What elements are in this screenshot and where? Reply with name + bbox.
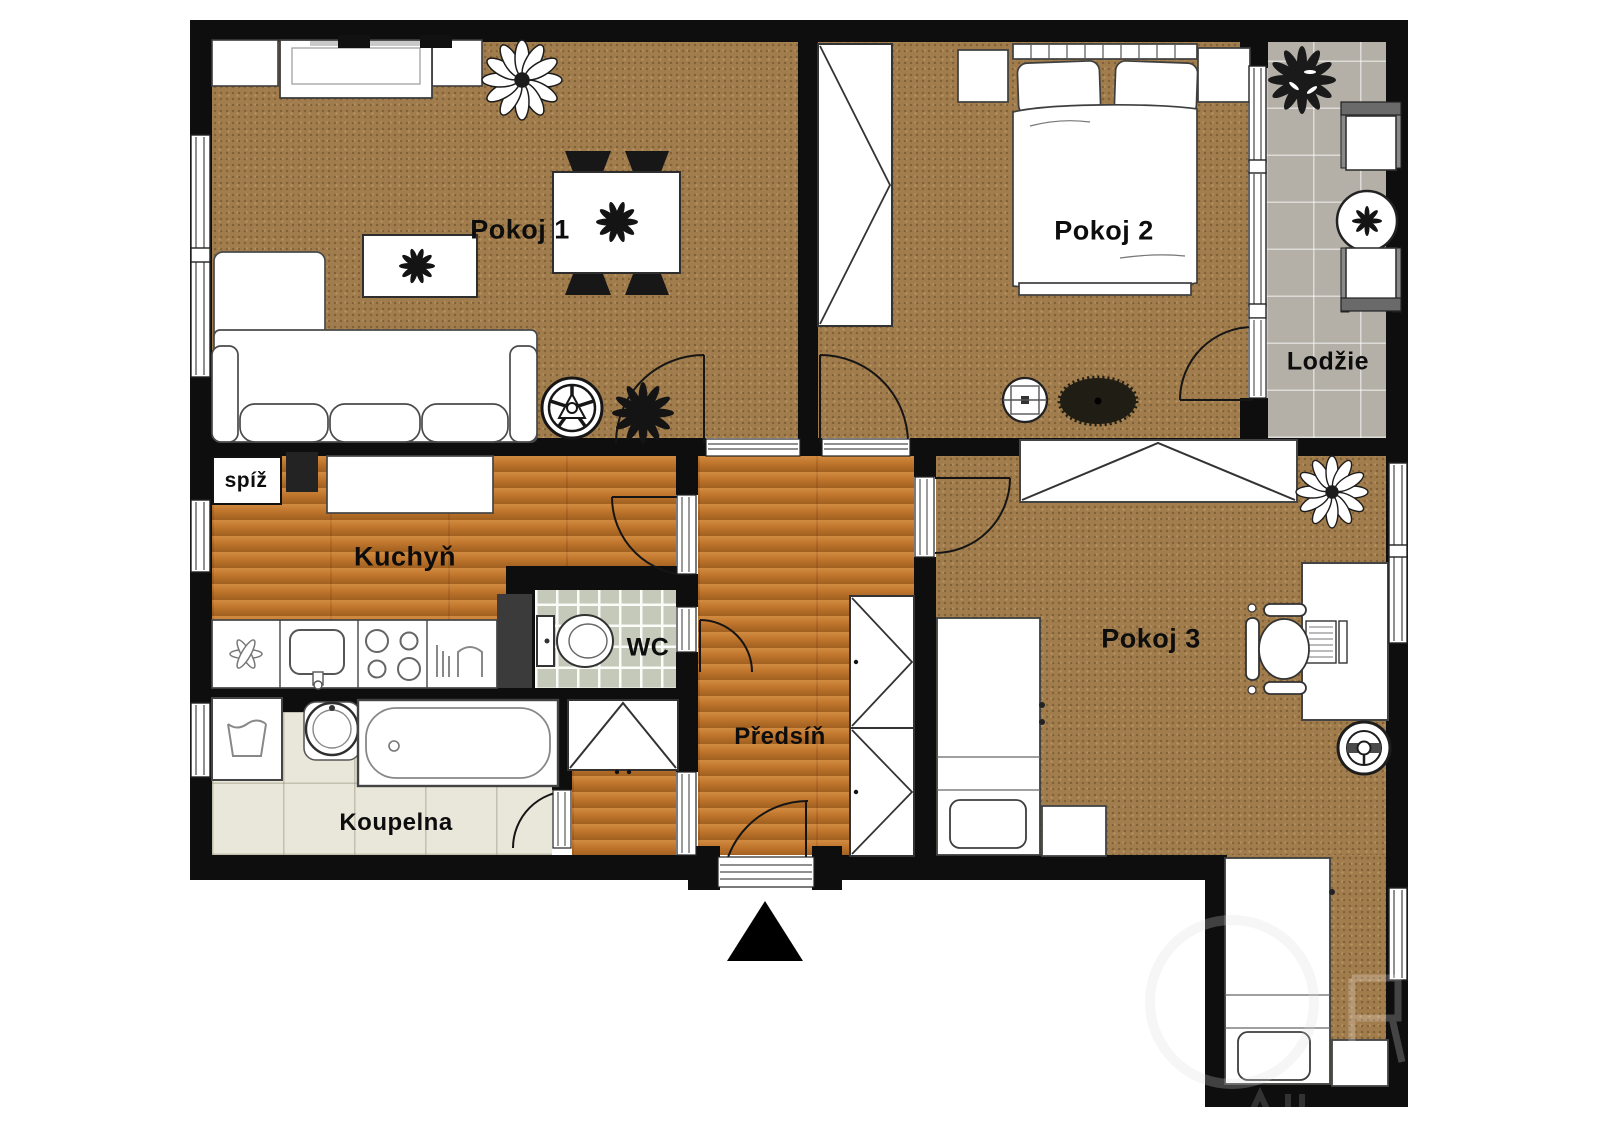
kitchen-counter-top bbox=[327, 456, 493, 513]
wagon-wheel bbox=[542, 378, 602, 438]
room-label-koupelna: Koupelna bbox=[339, 809, 452, 837]
double-bed bbox=[1013, 44, 1198, 295]
balcony-chair bbox=[1341, 102, 1401, 170]
desk bbox=[1302, 563, 1388, 720]
wardrobe bbox=[1020, 440, 1297, 502]
house-plant-icon bbox=[482, 40, 562, 120]
single-bed bbox=[1225, 858, 1335, 1084]
balcony-table bbox=[1337, 191, 1397, 251]
door-arc bbox=[935, 478, 1010, 553]
dark-plant-icon bbox=[1268, 46, 1336, 114]
kitchen-counter bbox=[212, 620, 497, 689]
door-arc bbox=[1180, 327, 1253, 400]
ceiling-lamp bbox=[1003, 378, 1047, 422]
room-label-predsin: Předsíň bbox=[734, 723, 826, 751]
room-label-pokoj-2: Pokoj 2 bbox=[1054, 216, 1154, 247]
coffee-table bbox=[363, 235, 477, 297]
floor-plan: Pokoj 1 Pokoj 2 Lodžie Kuchyň spíž WC Př… bbox=[0, 0, 1600, 1131]
hall-wardrobe bbox=[568, 700, 678, 774]
door-arc bbox=[700, 620, 752, 672]
room-label-pokoj-1: Pokoj 1 bbox=[470, 215, 570, 246]
toilet bbox=[537, 615, 613, 667]
tv-sideboard bbox=[280, 35, 452, 98]
bathroom-sink bbox=[304, 702, 360, 760]
house-plant-icon bbox=[1296, 456, 1368, 528]
entrance-arrow-icon bbox=[727, 901, 803, 961]
dining-table bbox=[553, 151, 680, 295]
laptop bbox=[1306, 621, 1347, 663]
bathtub bbox=[358, 700, 558, 786]
wheel-decor bbox=[1338, 722, 1390, 774]
single-bed bbox=[937, 618, 1045, 855]
room-label-lodzie: Lodžie bbox=[1287, 348, 1369, 377]
door-arc bbox=[820, 355, 908, 443]
room-label-pokoj-3: Pokoj 3 bbox=[1101, 624, 1201, 655]
balcony-chair bbox=[1341, 248, 1401, 312]
nightstand bbox=[1332, 1040, 1388, 1086]
room-label-kuchyn: Kuchyň bbox=[354, 542, 456, 573]
room-label-wc: WC bbox=[627, 634, 670, 663]
nightstand bbox=[1042, 806, 1106, 856]
wardrobe bbox=[818, 44, 892, 326]
hall-wardrobe bbox=[850, 596, 914, 856]
window bbox=[191, 66, 1407, 980]
room-label-spiz: spíž bbox=[225, 469, 268, 493]
pillow bbox=[950, 800, 1026, 848]
rug bbox=[1060, 378, 1136, 424]
washing-machine bbox=[212, 698, 282, 780]
office-chair bbox=[1246, 604, 1309, 694]
